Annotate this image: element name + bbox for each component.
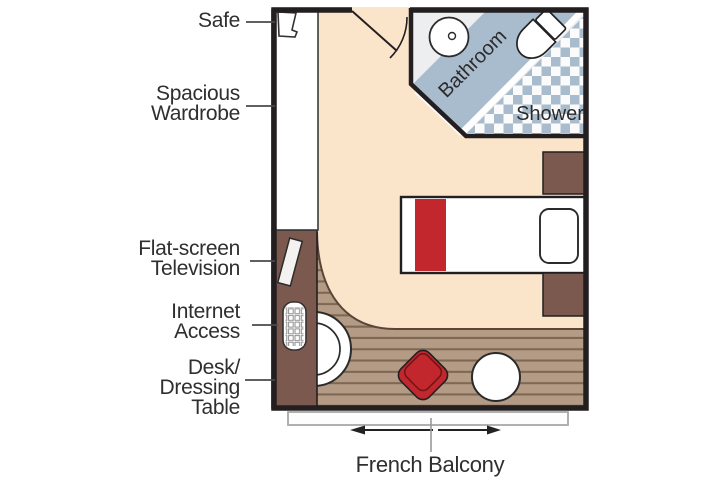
callout-desk-line: Desk/: [160, 358, 240, 378]
callout-tv-line: Flat-screen: [138, 239, 240, 259]
internet-keyboard: [283, 302, 306, 350]
callout-tv-line: Television: [138, 259, 240, 279]
callout-internet: Internet Access: [171, 302, 240, 342]
callout-internet-line: Access: [171, 322, 240, 342]
callout-wardrobe: Spacious Wardrobe: [151, 84, 240, 124]
side-table: [472, 353, 520, 401]
callout-safe: Safe: [198, 11, 240, 31]
arrow-right-icon: [487, 426, 501, 435]
sink: [430, 18, 469, 57]
arrow-left-icon: [350, 426, 365, 435]
stateroom-floorplan: Bathroom Shower Safe Spacious Wardrobe F…: [0, 0, 726, 484]
callout-internet-line: Internet: [171, 302, 240, 322]
nightstand-bottom: [543, 273, 586, 316]
callout-wardrobe-line: Wardrobe: [151, 104, 240, 124]
pillow: [540, 209, 578, 263]
callout-desk: Desk/ Dressing Table: [160, 358, 240, 418]
balcony-arrows: [350, 426, 501, 435]
callout-wardrobe-line: Spacious: [151, 84, 240, 104]
french-balcony-label: French Balcony: [345, 452, 515, 478]
callout-safe-line: Safe: [198, 11, 240, 31]
bed-red-runner: [415, 199, 446, 271]
shower-label: Shower: [516, 103, 584, 125]
nightstand-top: [543, 152, 586, 194]
floorplan-drawing: Bathroom Shower: [0, 0, 726, 484]
french-balcony-door: [288, 412, 568, 425]
callout-desk-line: Dressing: [160, 378, 240, 398]
wardrobe: [272, 10, 318, 230]
callout-desk-line: Table: [160, 398, 240, 418]
callout-tv: Flat-screen Television: [138, 239, 240, 279]
